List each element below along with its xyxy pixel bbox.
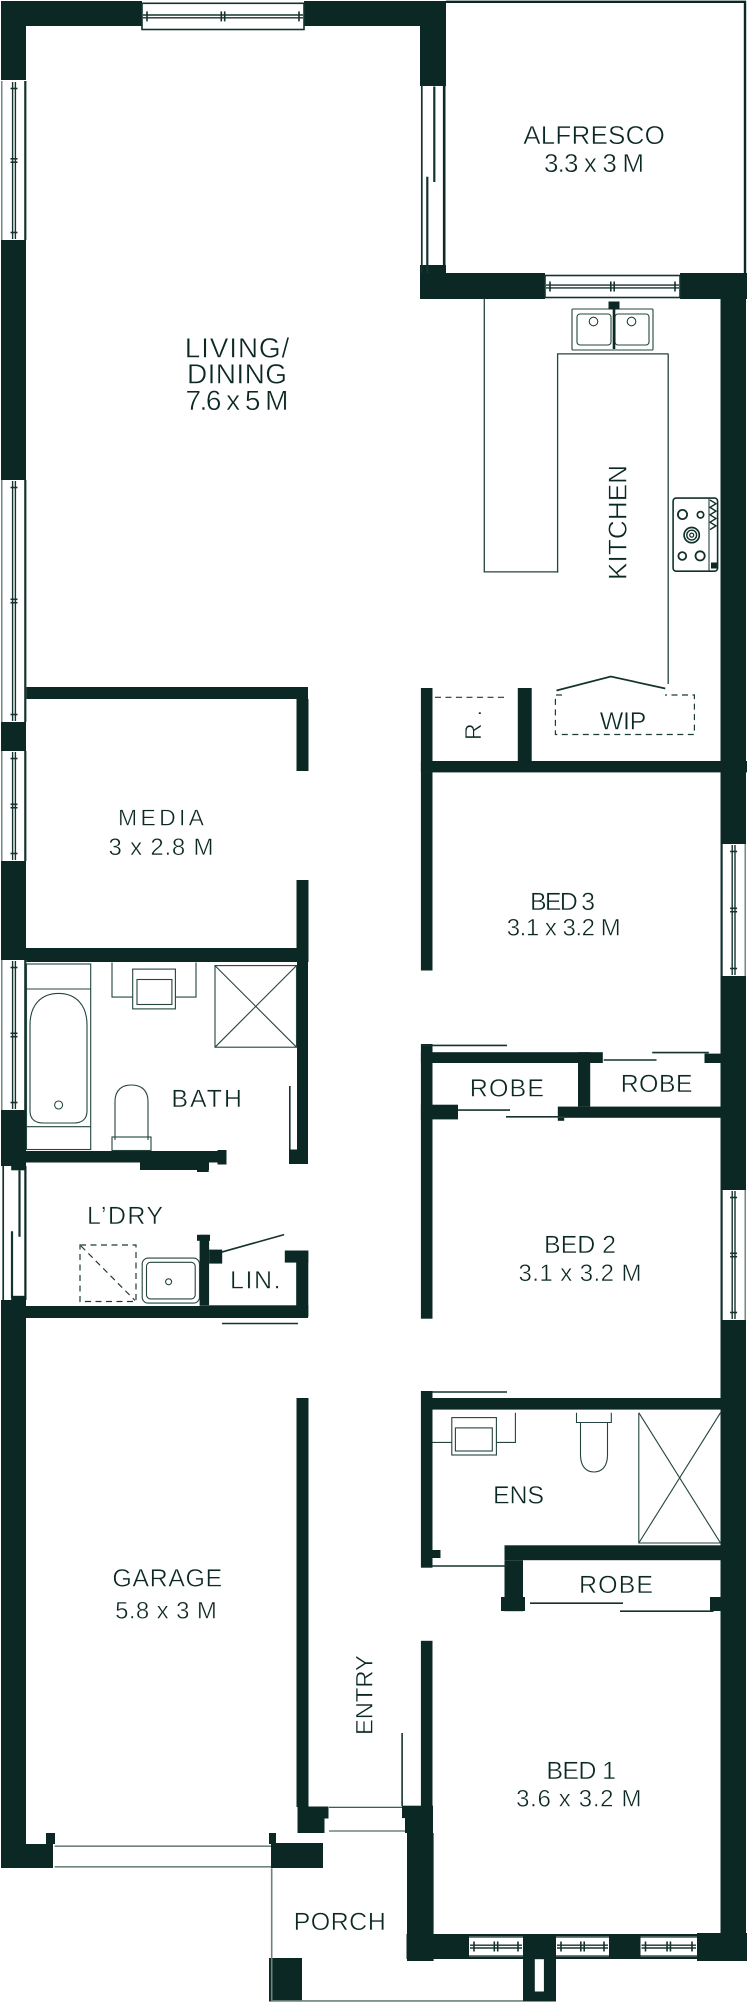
svg-text:BED 1: BED 1 — [546, 1757, 616, 1785]
svg-text:ENS: ENS — [493, 1481, 544, 1509]
svg-text:ALFRESCO: ALFRESCO — [523, 120, 665, 150]
svg-text:BATH: BATH — [171, 1085, 242, 1113]
svg-text:GARAGE: GARAGE — [112, 1565, 222, 1593]
svg-text:R.: R. — [460, 710, 486, 740]
svg-text:ROBE: ROBE — [470, 1075, 544, 1103]
svg-text:PORCH: PORCH — [294, 1908, 386, 1936]
svg-text:BED 2: BED 2 — [544, 1231, 616, 1259]
svg-text:3.1 x 3.2 M: 3.1 x 3.2 M — [507, 915, 621, 942]
svg-text:3.3 x 3 M: 3.3 x 3 M — [544, 148, 644, 178]
svg-text:3.1 x 3.2 M: 3.1 x 3.2 M — [519, 1260, 642, 1287]
svg-text:7.6 x 5 M: 7.6 x 5 M — [186, 385, 289, 416]
svg-text:LIN.: LIN. — [230, 1267, 280, 1295]
svg-text:L’DRY: L’DRY — [87, 1202, 163, 1230]
svg-text:5.8 x 3 M: 5.8 x 3 M — [115, 1598, 217, 1625]
svg-text:3.6 x 3.2 M: 3.6 x 3.2 M — [516, 1786, 641, 1813]
svg-text:ROBE: ROBE — [621, 1070, 693, 1098]
svg-text:3 x 2.8 M: 3 x 2.8 M — [109, 834, 214, 861]
svg-text:BED 3: BED 3 — [530, 888, 595, 916]
svg-text:KITCHEN: KITCHEN — [603, 465, 633, 580]
svg-text:MEDIA: MEDIA — [118, 805, 205, 831]
svg-text:ROBE: ROBE — [579, 1571, 653, 1599]
svg-text:ENTRY: ENTRY — [351, 1655, 378, 1735]
svg-text:WIP: WIP — [600, 708, 647, 736]
